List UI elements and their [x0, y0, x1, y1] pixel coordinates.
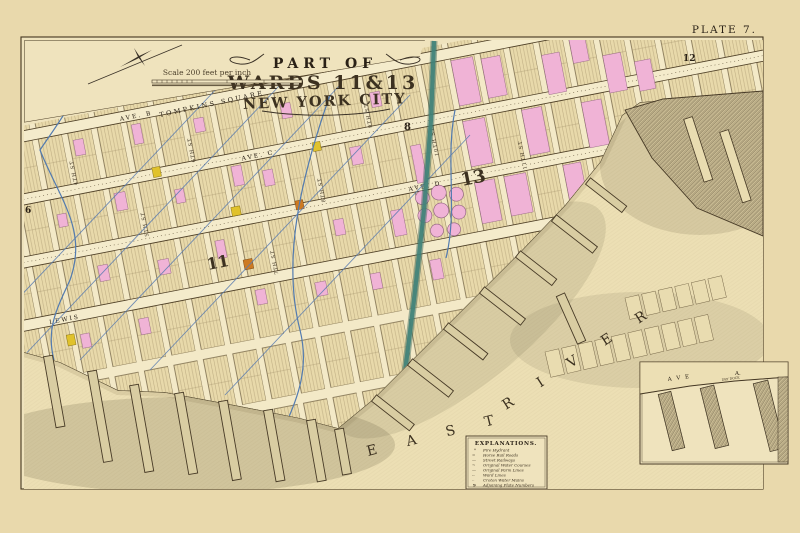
plate-label: PLATE 7. [692, 24, 757, 36]
map-canvas: AVE. B AVE. C AVE. D LEWIS 4TH ST 5TH ST… [0, 0, 800, 533]
scale-text: Scale 200 feet per inch [163, 68, 251, 77]
orange-building [243, 258, 254, 270]
adjoining-plate-6: 6 [25, 206, 31, 216]
yellow-building [152, 166, 162, 177]
adjoining-plate-8: 8 [404, 122, 411, 133]
svg-text:9: 9 [473, 483, 476, 488]
legend-row: 9Adjoining Plate Numbers [473, 483, 534, 488]
scale-bar [152, 80, 302, 86]
svg-text:Adjoining Plate Numbers: Adjoining Plate Numbers [482, 483, 534, 488]
title-part-of: PART OF [273, 56, 377, 72]
legend-title: EXPLANATIONS. [475, 441, 537, 447]
adjoining-plate-12: 12 [683, 54, 696, 64]
inset-map: A V E A. DRY DOCK [640, 362, 788, 464]
map-sheet: AVE. B AVE. C AVE. D LEWIS 4TH ST 5TH ST… [0, 0, 800, 533]
legend-box: EXPLANATIONS. *Fire Hydrant =Horse Rail … [466, 436, 547, 489]
